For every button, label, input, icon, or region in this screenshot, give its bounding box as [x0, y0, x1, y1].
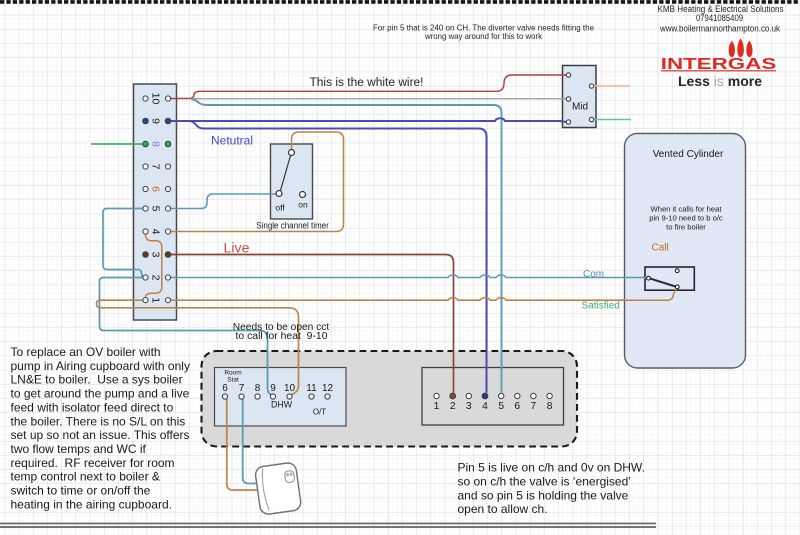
svg-text:to call for heat 9-10: to call for heat 9-10: [236, 331, 328, 342]
svg-text:open to allow ch.: open to allow ch.: [458, 502, 548, 516]
svg-text:7: 7: [531, 401, 537, 412]
svg-text:Less is more: Less is more: [678, 73, 762, 89]
svg-text:6: 6: [222, 383, 228, 394]
svg-text:Single channel timer: Single channel timer: [256, 221, 329, 231]
svg-text:To replace an OV boiler with: To replace an OV boiler with: [11, 345, 161, 359]
svg-text:10: 10: [284, 383, 296, 394]
svg-text:switch to time or on/off the: switch to time or on/off the: [11, 484, 151, 498]
svg-text:8: 8: [547, 401, 553, 412]
svg-text:2: 2: [450, 401, 456, 412]
svg-text:Satisfied: Satisfied: [582, 301, 620, 312]
svg-text:Pin 5 is live on c/h and 0v on: Pin 5 is live on c/h and 0v on DHW.: [458, 460, 645, 474]
svg-text:This is the white wire!: This is the white wire!: [310, 75, 424, 89]
svg-text:Call: Call: [652, 243, 669, 254]
svg-text:3: 3: [150, 252, 162, 258]
svg-text:2: 2: [150, 275, 162, 281]
svg-text:LN&E to boiler. Use a sys boi: LN&E to boiler. Use a sys boiler: [11, 373, 183, 387]
svg-text:4: 4: [150, 229, 162, 235]
svg-text:7: 7: [150, 164, 162, 170]
svg-text:07941085409: 07941085409: [696, 13, 743, 23]
svg-text:www.boilermannorthampton.co.uk: www.boilermannorthampton.co.uk: [659, 23, 780, 33]
svg-text:Room: Room: [224, 370, 241, 377]
svg-text:9: 9: [270, 383, 276, 394]
svg-text:DHW: DHW: [271, 400, 293, 410]
svg-text:When it calls for heat: When it calls for heat: [651, 205, 723, 214]
svg-text:1: 1: [150, 297, 162, 303]
svg-text:on: on: [298, 200, 308, 210]
svg-text:4: 4: [482, 401, 488, 412]
svg-text:required. RF receiver for roo: required. RF receiver for room: [11, 456, 175, 470]
svg-text:heating in the airing cupboard: heating in the airing cupboard.: [11, 497, 172, 511]
svg-text:5: 5: [498, 401, 504, 412]
svg-text:to fire boiler: to fire boiler: [666, 223, 706, 232]
svg-text:Stat: Stat: [227, 377, 239, 384]
svg-text:Com: Com: [583, 269, 604, 280]
svg-text:10: 10: [150, 93, 162, 105]
svg-text:pin 9-10 need to b o/c: pin 9-10 need to b o/c: [649, 214, 723, 223]
svg-text:1: 1: [434, 401, 440, 412]
svg-text:Vented Cylinder: Vented Cylinder: [653, 149, 724, 160]
svg-text:Live: Live: [224, 241, 250, 257]
svg-text:9: 9: [150, 118, 162, 124]
svg-text:pump in Airing cupboard with o: pump in Airing cupboard with only: [11, 359, 190, 373]
svg-text:feed with isolator feed direct: feed with isolator feed direct to: [11, 400, 174, 414]
svg-text:Mid: Mid: [572, 102, 588, 113]
svg-text:7: 7: [239, 383, 245, 394]
svg-text:so on c/h the valve is ‘energi: so on c/h the valve is ‘energised’: [458, 474, 631, 488]
svg-text:temp control next to boiler &: temp control next to boiler &: [11, 470, 160, 484]
svg-text:set up so not an issue. This o: set up so not an issue. This offers: [11, 428, 190, 442]
svg-text:wrong way around for this to w: wrong way around for this to work: [424, 31, 543, 41]
svg-text:off: off: [275, 203, 285, 213]
svg-text:6: 6: [150, 186, 162, 192]
svg-text:two flow temps and WC if: two flow temps and WC if: [11, 442, 147, 456]
svg-text:to get around the pump and a l: to get around the pump and a live: [11, 387, 190, 401]
svg-text:5: 5: [150, 206, 162, 212]
svg-text:3: 3: [466, 401, 472, 412]
svg-text:12: 12: [322, 383, 334, 394]
svg-text:8: 8: [255, 383, 261, 394]
svg-text:6: 6: [514, 401, 520, 412]
svg-text:8: 8: [150, 141, 162, 147]
svg-text:Netutral: Netutral: [211, 134, 253, 148]
svg-text:O/T: O/T: [313, 408, 326, 417]
svg-text:the boiler. There is no S/L on: the boiler. There is no S/L on this: [11, 414, 186, 428]
svg-text:11: 11: [306, 383, 317, 394]
svg-text:and so pin 5 is holding the va: and so pin 5 is holding the valve: [458, 488, 629, 502]
